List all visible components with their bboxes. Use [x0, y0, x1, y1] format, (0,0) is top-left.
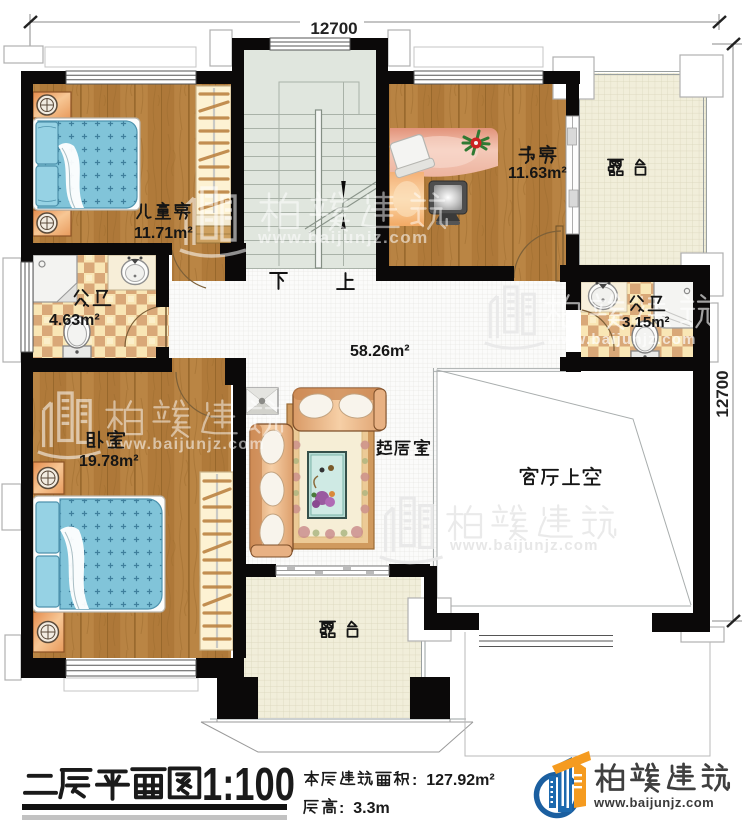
svg-text:19.78m²: 19.78m² [79, 453, 139, 470]
svg-text:: 3.3m: : 3.3m [339, 800, 390, 817]
svg-text:11.71m²: 11.71m² [134, 225, 193, 242]
svg-text:: 127.92m²: : 127.92m² [412, 772, 495, 789]
svg-text:www.baijunjz.com: www.baijunjz.com [449, 537, 599, 554]
svg-text:3.15m²: 3.15m² [622, 314, 670, 331]
svg-text:www.baijunjz.com: www.baijunjz.com [257, 228, 429, 247]
svg-text:58.26m²: 58.26m² [350, 343, 410, 360]
svg-text:12700: 12700 [713, 370, 732, 417]
svg-text:12700: 12700 [310, 19, 357, 38]
svg-text:www.baijunjz.com: www.baijunjz.com [593, 795, 714, 810]
svg-text:www.baijunjz.com: www.baijunjz.com [547, 331, 697, 348]
svg-text:4.63m²: 4.63m² [49, 312, 100, 329]
svg-text:1:100: 1:100 [202, 758, 295, 810]
svg-text:11.63m²: 11.63m² [508, 165, 567, 182]
svg-text:www.baijunjz.com: www.baijunjz.com [105, 436, 265, 453]
